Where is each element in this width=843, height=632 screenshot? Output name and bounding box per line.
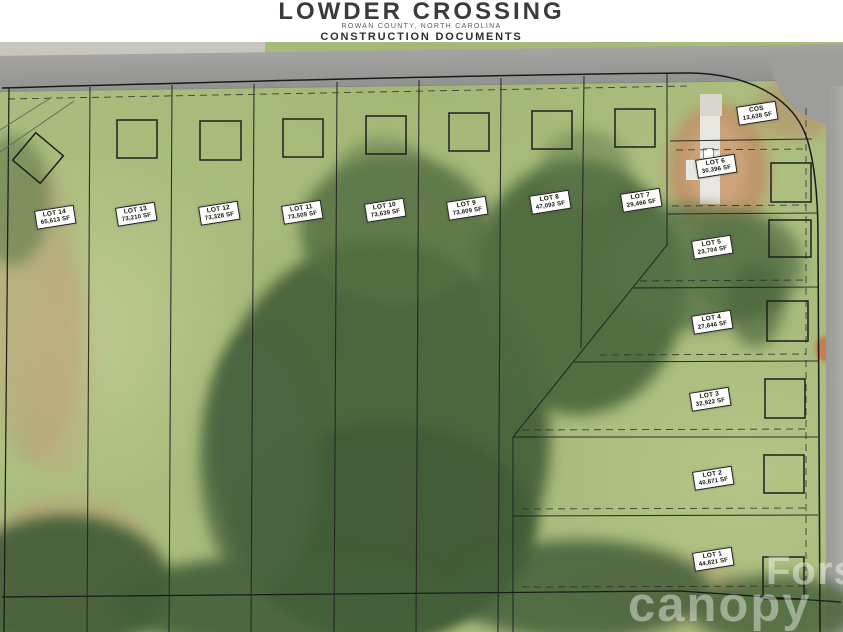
tree-canopy bbox=[450, 540, 710, 632]
page-subtitle: ROWAN COUNTY, NORTH CAROLINA bbox=[0, 23, 843, 31]
tree-canopy bbox=[200, 330, 320, 590]
construction-plan-sheet: LOT 14 65,613 SF LOT 13 73,210 SF LOT 12… bbox=[0, 0, 843, 632]
dirt-patch bbox=[25, 260, 95, 480]
page-title: LOWDER CROSSING bbox=[0, 1, 843, 23]
document-type-label: CONSTRUCTION DOCUMENTS bbox=[0, 31, 843, 44]
driveway-apron bbox=[700, 94, 722, 116]
title-block: LOWDER CROSSING ROWAN COUNTY, NORTH CARO… bbox=[0, 0, 843, 42]
side-road-right bbox=[826, 86, 843, 632]
tree-canopy bbox=[728, 262, 783, 347]
